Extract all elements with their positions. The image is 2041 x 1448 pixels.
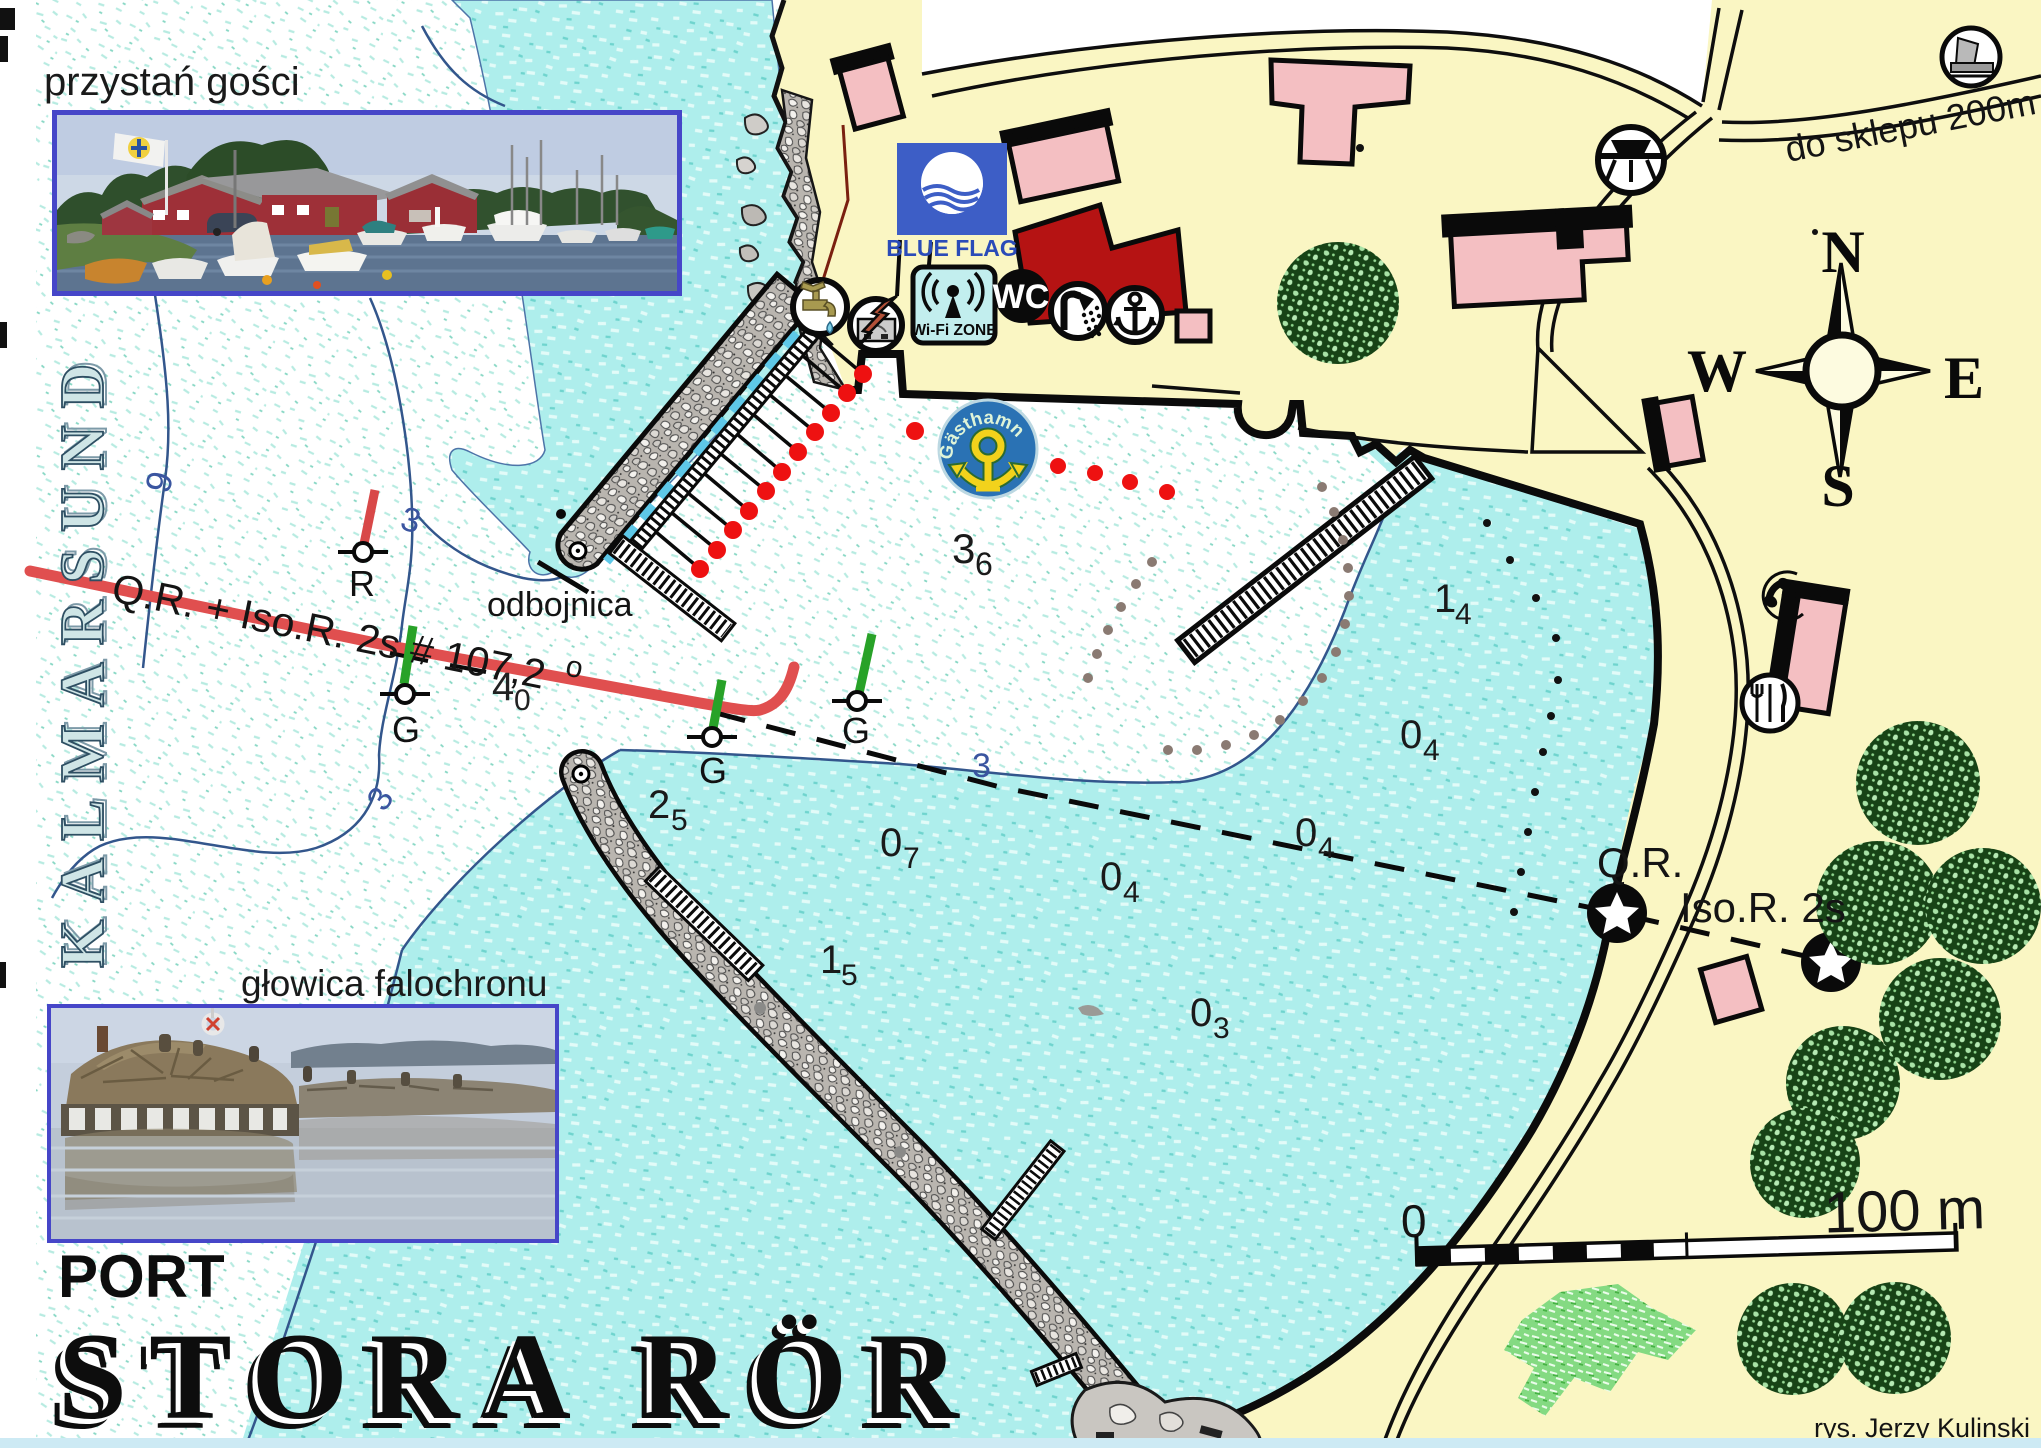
svg-text:4: 4	[1318, 832, 1335, 865]
svg-text:3: 3	[952, 525, 975, 572]
svg-text:STORA RÖR: STORA RÖR	[58, 1308, 981, 1445]
svg-text:KALMARSUND: KALMARSUND	[49, 347, 117, 968]
svg-text:głowica falochronu: głowica falochronu	[241, 963, 547, 1004]
svg-text:E: E	[1944, 345, 1984, 411]
svg-text:S: S	[1821, 453, 1854, 519]
svg-text:5: 5	[841, 959, 858, 992]
svg-text:0: 0	[1295, 811, 1317, 855]
svg-text:WC: WC	[993, 278, 1050, 316]
svg-text:Wi-Fi ZONE: Wi-Fi ZONE	[911, 322, 996, 339]
svg-text:BLUE FLAG: BLUE FLAG	[886, 235, 1018, 261]
svg-text:Iso.R. 2s: Iso.R. 2s	[1680, 884, 1846, 931]
svg-text:R: R	[349, 563, 375, 604]
svg-text:4: 4	[492, 665, 514, 709]
svg-text:2: 2	[648, 783, 670, 827]
svg-text:0: 0	[514, 684, 531, 717]
svg-text:0: 0	[1100, 855, 1122, 899]
svg-text:G: G	[842, 710, 870, 751]
svg-text:4: 4	[1455, 598, 1472, 631]
svg-text:W: W	[1687, 338, 1747, 404]
svg-text:6: 6	[975, 546, 993, 582]
svg-text:1: 1	[1434, 577, 1456, 621]
svg-text:1: 1	[820, 938, 842, 982]
svg-text:przystań gości: przystań gości	[44, 60, 300, 104]
svg-text:Q.R.: Q.R.	[1597, 839, 1683, 886]
svg-text:3: 3	[1213, 1012, 1230, 1045]
svg-text:0: 0	[1190, 991, 1212, 1035]
svg-text:4: 4	[1423, 734, 1440, 767]
svg-text:G: G	[699, 750, 727, 791]
svg-text:odbojnica: odbojnica	[487, 586, 633, 624]
svg-text:N: N	[1821, 219, 1864, 285]
svg-text:3: 3	[972, 747, 991, 785]
svg-text:7: 7	[903, 842, 920, 875]
svg-text:0: 0	[880, 821, 902, 865]
svg-text:PORT: PORT	[58, 1243, 225, 1310]
svg-text:0: 0	[1400, 713, 1422, 757]
svg-text:4: 4	[1123, 876, 1140, 909]
svg-text:G: G	[392, 709, 420, 750]
svg-text:0: 0	[1400, 1195, 1427, 1248]
svg-text:5: 5	[671, 804, 688, 837]
